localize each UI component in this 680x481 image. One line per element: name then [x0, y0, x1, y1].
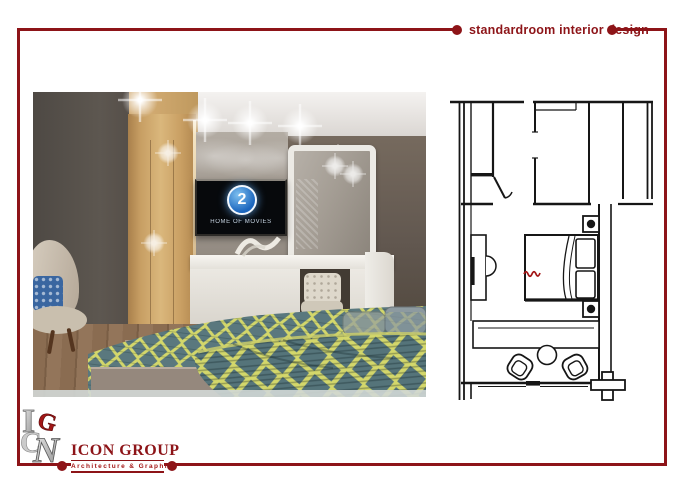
icon-group-monogram: I C G N: [16, 402, 72, 466]
plan-entry-closet: [461, 102, 512, 204]
plan-bathroom: [532, 102, 591, 204]
plan-bed: [524, 235, 598, 300]
plan-desk: [471, 235, 496, 300]
photo-bottom-strip: [33, 390, 426, 397]
plan-bench: [473, 321, 599, 348]
plan-nightstand-bottom: [583, 301, 599, 317]
floor-plan-drawing: [448, 92, 654, 408]
plan-column: [591, 372, 625, 400]
bedroom-render-photo: 2 HOME OF MOVIES: [33, 92, 426, 397]
logo-name: ICON GROUP: [71, 442, 180, 460]
plan-table: [538, 346, 557, 365]
presentation-sheet: standardroom interior design 2 HOME OF M…: [0, 0, 680, 481]
bullet-dot: [167, 461, 177, 471]
border-right-line: [664, 28, 667, 466]
logo-tagline-underline: [71, 471, 164, 473]
company-logo-mark: I C G N: [16, 402, 72, 466]
plan-nightstand-top: [583, 216, 599, 232]
bed: [33, 92, 426, 397]
plan-bottom-wall: [461, 381, 611, 399]
plan-stool: [560, 352, 590, 382]
border-top-line-left: [17, 28, 455, 31]
bullet-dot: [57, 461, 67, 471]
border-left-line: [17, 28, 20, 466]
svg-text:N: N: [32, 430, 61, 466]
bullet-dot: [452, 25, 462, 35]
plan-east-wall: [599, 204, 611, 382]
page-title: standardroom interior design: [469, 23, 649, 37]
plan-stool: [505, 352, 535, 382]
